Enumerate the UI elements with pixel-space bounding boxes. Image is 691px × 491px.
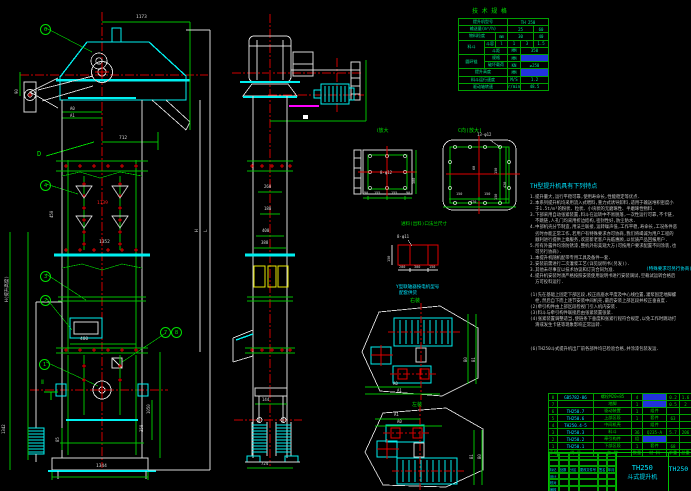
dim-b0-planr: B0 (464, 357, 468, 362)
plan-view-left (365, 405, 483, 490)
dim-a0-front: A0 (70, 107, 75, 111)
revision-grid: 标记处数分区更改文件号签名年月日设计校对审核 (549, 453, 616, 491)
dim-400-door: 400 (80, 338, 88, 343)
table-cell: Q235-A (643, 429, 667, 436)
table-cell: 套件 (643, 436, 667, 443)
table-cell: 中间机壳 (594, 422, 632, 429)
dim-a1-planl: A1 (394, 413, 399, 417)
table-cell: TH250.4·5 (558, 422, 594, 429)
dim-1352: 1352 (99, 241, 110, 246)
note-line: 4.中部机壳分节制造,用法兰联接,运转噪声低,工作平稳,寿命长,工况条件恶 (530, 224, 691, 230)
balloon-7: 7 (160, 327, 171, 338)
table-cell (667, 408, 680, 415)
table-cell: mm (496, 33, 508, 40)
table-cell: 36 (632, 429, 643, 436)
drawing-title-model: TH250 (632, 464, 653, 472)
dim-13-d12: 13-φ12 (477, 133, 491, 137)
signature-label: 审核 (549, 486, 559, 491)
table-cell: 40 (534, 33, 549, 40)
table-cell: 组件 (643, 408, 667, 415)
table-cell: 1 (508, 40, 521, 47)
title-block-center: TH250 斗式提升机 (616, 453, 669, 491)
table-cell: 206 (680, 429, 691, 436)
table-cell: 1 (632, 408, 643, 415)
detail-i-title: Ⅰ放大 (377, 129, 388, 134)
table-cell: 料斗运行速度 (459, 76, 508, 83)
dim-a1-front: A1 (70, 114, 75, 118)
balloon-1: 1 (39, 359, 50, 370)
table-cell: 斗距 (485, 47, 508, 54)
note-line: 劣时亦能正常工作,若用户有特殊要求亦可协商,我们将竭诚为用户工程的 (530, 231, 691, 237)
table-cell: TH250.3 (558, 429, 594, 436)
signature-cell (607, 486, 616, 491)
table-cell: 1.5 (534, 40, 549, 47)
dim-1139: 1139 (97, 202, 108, 207)
table-cell: 下部区段 (594, 443, 632, 450)
table-cell: 输送量(m³/h) (459, 26, 508, 33)
table-cell (680, 408, 691, 415)
table-cell: 组件 (643, 422, 667, 429)
dim-8-d11: 8-φ11 (397, 235, 409, 239)
section-ii: Ⅱ (41, 380, 44, 386)
table-cell: 地脚 (594, 401, 632, 408)
table-cell: 套件 (643, 443, 667, 450)
table-cell: TH250.1 (558, 443, 594, 450)
dim-144: 144 (262, 398, 269, 402)
table-cell (680, 415, 691, 422)
table-cell: L50 (643, 401, 667, 408)
notes-heading: TH型提升机具有下列特点 (530, 181, 691, 190)
dim-450: 450 (50, 211, 54, 218)
table-cell: 68 (667, 443, 680, 450)
table-cell: 提升高度 (459, 69, 508, 76)
dim-180: 180 (264, 207, 271, 211)
dim-350: 350 (140, 425, 144, 432)
table-cell: 料斗 (594, 429, 632, 436)
table-cell: 6 (549, 408, 558, 415)
table-cell (680, 422, 691, 429)
table-cell: 牵引构件 (594, 436, 632, 443)
dim-150d: 150 (495, 194, 499, 200)
table-cell: M/S (508, 76, 521, 83)
dim-a0-planr: A0 (393, 382, 398, 386)
note-line: 顺利进行提供上乘服务,欢迎新老客户光临惠顾,以优质产品回报用户. (530, 237, 691, 243)
table-cell: 4 (632, 394, 643, 401)
table-cell: 5 (549, 415, 558, 422)
dim-1342: 1342 (2, 424, 6, 434)
balloon-2: 2 (40, 295, 51, 306)
table-cell: TH250.7 (558, 408, 594, 415)
note-line: 栓,然后自下而上逐节安装中间机壳,最后安装上部区段并校正垂直度. (530, 298, 691, 304)
table-cell: 斗容 (485, 40, 496, 47)
dim-300-rot: 300 (413, 178, 417, 184)
table-cell: 30 (508, 33, 534, 40)
dim-1344: 1344 (96, 465, 107, 470)
dim-260: 260 (264, 185, 271, 189)
bom-table: 8GB5782-86螺栓M20×854M200.21.67地脚1L500.526… (548, 393, 691, 457)
table-cell: 物料粒度 (459, 33, 496, 40)
plan-view-right (362, 303, 478, 400)
table-cell: TH250.6 (558, 415, 594, 422)
table-cell (558, 401, 594, 408)
tech-spec-table: 提升机型号TH 250输送量(m³/h)2560物料粒度mm3040料斗斗容l1… (458, 18, 549, 91)
dim-420: 420 (504, 182, 508, 188)
dim-388: 388 (261, 241, 268, 245)
table-cell: MM (508, 69, 521, 76)
note-line: 5.所有外露件均涂防锈漆,整机外形美观大方(可按用户要求配置不同涂装,也 (530, 243, 691, 249)
table-cell: ≥250 (521, 62, 549, 69)
dim-l-letter: L (205, 229, 210, 232)
table-cell: 0.5 (667, 401, 680, 408)
table-cell: 料斗 (459, 40, 485, 54)
dim-1050: 1050 (147, 404, 151, 414)
table-cell: 3 (521, 40, 534, 47)
dim-150e: 150 (429, 266, 435, 270)
table-cell: 组 (632, 436, 643, 443)
note-line: (6)TH250斗式提升机出厂前各部件均已检验合格,并涂漆包装发运. (530, 346, 691, 352)
table-cell: 1.6 (680, 394, 691, 401)
table-cell: 5.7 (667, 429, 680, 436)
front-view (10, 12, 210, 480)
dim-90: 90 (15, 89, 19, 94)
drawing-number: TH250 (669, 465, 691, 473)
dim-400-side: 400 (262, 229, 269, 233)
dim-150f: 150 (388, 256, 392, 262)
balloon-8: 8 (171, 327, 182, 338)
table-cell: 1 (549, 443, 558, 450)
title-block: 标记处数分区更改文件号签名年月日设计校对审核 TH250 斗式提升机 TH250 (548, 452, 691, 491)
table-cell: TH 250 (508, 19, 549, 26)
signature-cell (559, 486, 569, 491)
table-cell: 60 (534, 26, 549, 33)
dim-200: 200 (399, 266, 405, 270)
signature-cell (569, 486, 579, 491)
table-cell (667, 422, 680, 429)
table-cell: 0.2 (667, 394, 680, 401)
table-cell: 上部区段 (594, 415, 632, 422)
plan-left-title: 左装 (412, 403, 422, 408)
notes-body: 1.提升量大,运行平稳可靠,使用寿命长,性能稳定等优点.2.本系列提升机均采用流… (530, 194, 691, 352)
table-cell: 套件 (643, 415, 667, 422)
dim-90b: 90 (406, 192, 410, 196)
balloon-3: 3 (40, 271, 51, 282)
table-cell: l (496, 40, 508, 47)
table-cell: 48.5 (521, 83, 549, 90)
tech-table-title: 技 术 规 格 (472, 9, 507, 15)
table-cell: 破坏载荷 (485, 62, 508, 69)
detail-flange-c (443, 136, 520, 214)
balloon-6: 6 (40, 24, 51, 35)
table-cell (680, 443, 691, 450)
coupling-note-1: Y型联轴器按电机型号 (396, 286, 439, 291)
table-cell: 螺栓M20×85 (594, 394, 632, 401)
table-cell: 7 (549, 401, 558, 408)
table-cell: 8 (549, 394, 558, 401)
signature-cell (598, 486, 607, 491)
table-cell: 1.2 (521, 76, 549, 83)
table-cell: 1 (632, 415, 643, 422)
table-cell: M20 (643, 394, 667, 401)
note-line: (1)先在基础上固定下部区段,校正底座水平度及中心线位置,灌浆固定地脚螺 (530, 292, 691, 298)
table-cell (632, 422, 643, 429)
section-d: D (37, 151, 41, 158)
dim-8-d12: 8-φ12 (380, 171, 392, 175)
table-cell: KN (508, 62, 521, 69)
drawing-title-product: 斗式提升机 (627, 472, 657, 481)
dim-155a: 155 (374, 192, 380, 196)
table-cell: 驱动装置 (594, 408, 632, 415)
table-cell: ≤40 (521, 69, 549, 76)
dim-a1-planr: A1 (397, 389, 402, 393)
table-cell: 圆环链 (459, 54, 485, 68)
table-cell: 规格 (485, 54, 508, 61)
table-cell: 提升机型号 (459, 19, 508, 26)
signature-cell (579, 486, 598, 491)
dim-h-letter: H (196, 229, 201, 232)
table-cell: 350 (521, 47, 549, 54)
dim-85: 85 (56, 437, 60, 442)
side-view (232, 14, 366, 468)
dim-150b: 150 (484, 193, 490, 197)
flange-note: 进料(出料)口法兰尺寸 (401, 223, 447, 228)
table-cell: GB5782-86 (558, 394, 594, 401)
dim-724: 724 (261, 462, 268, 466)
coupling-note-2: 配套供货 (399, 292, 417, 297)
dim-155b: 155 (391, 192, 397, 196)
table-cell: 25 (508, 26, 534, 33)
dim-lift-height: H(提升高度) (6, 276, 11, 302)
dim-90a: 90 (364, 192, 368, 196)
dim-b1-planr: B1 (472, 357, 476, 362)
table-cell: 18×64 (521, 54, 549, 61)
balloon-4: 4 (40, 180, 51, 191)
dim-712: 712 (119, 137, 127, 142)
dim-60: 60 (473, 166, 477, 170)
dim-470: 470 (470, 201, 476, 205)
dim-1173: 1173 (136, 16, 147, 21)
table-cell (680, 436, 691, 443)
title-block-right: TH250 (669, 453, 691, 491)
table-cell (667, 436, 680, 443)
table-cell: 4 (549, 422, 558, 429)
plan-right-title: 右装 (410, 299, 420, 304)
dim-a0-planl: A0 (397, 420, 402, 424)
dim-b0-planl: B0 (478, 454, 482, 459)
table-cell: 2 (549, 436, 558, 443)
cad-sheet: 技 术 规 格1173712A0A190D45011391352H(提升高度)H… (0, 0, 691, 491)
dim-b1-planl: B1 (470, 454, 474, 459)
table-cell: 1 (632, 443, 643, 450)
dim-150c: 150 (495, 168, 499, 174)
table-cell: r/min (508, 83, 521, 90)
table-cell: 63 (667, 415, 680, 422)
table-cell: 1 (632, 401, 643, 408)
dim-300b: 300 (414, 266, 420, 270)
notes-block: TH型提升机具有下列特点 1.提升量大,运行平稳可靠,使用寿命长,性能稳定等优点… (530, 181, 691, 352)
table-cell: MM (508, 47, 521, 54)
table-cell: 2 (680, 401, 691, 408)
table-cell: 驱动轴转速 (459, 83, 508, 90)
dim-150a: 150 (456, 193, 462, 197)
table-cell: MM (508, 54, 521, 61)
table-cell: 3 (549, 429, 558, 436)
table-cell: TH250.2 (558, 436, 594, 443)
